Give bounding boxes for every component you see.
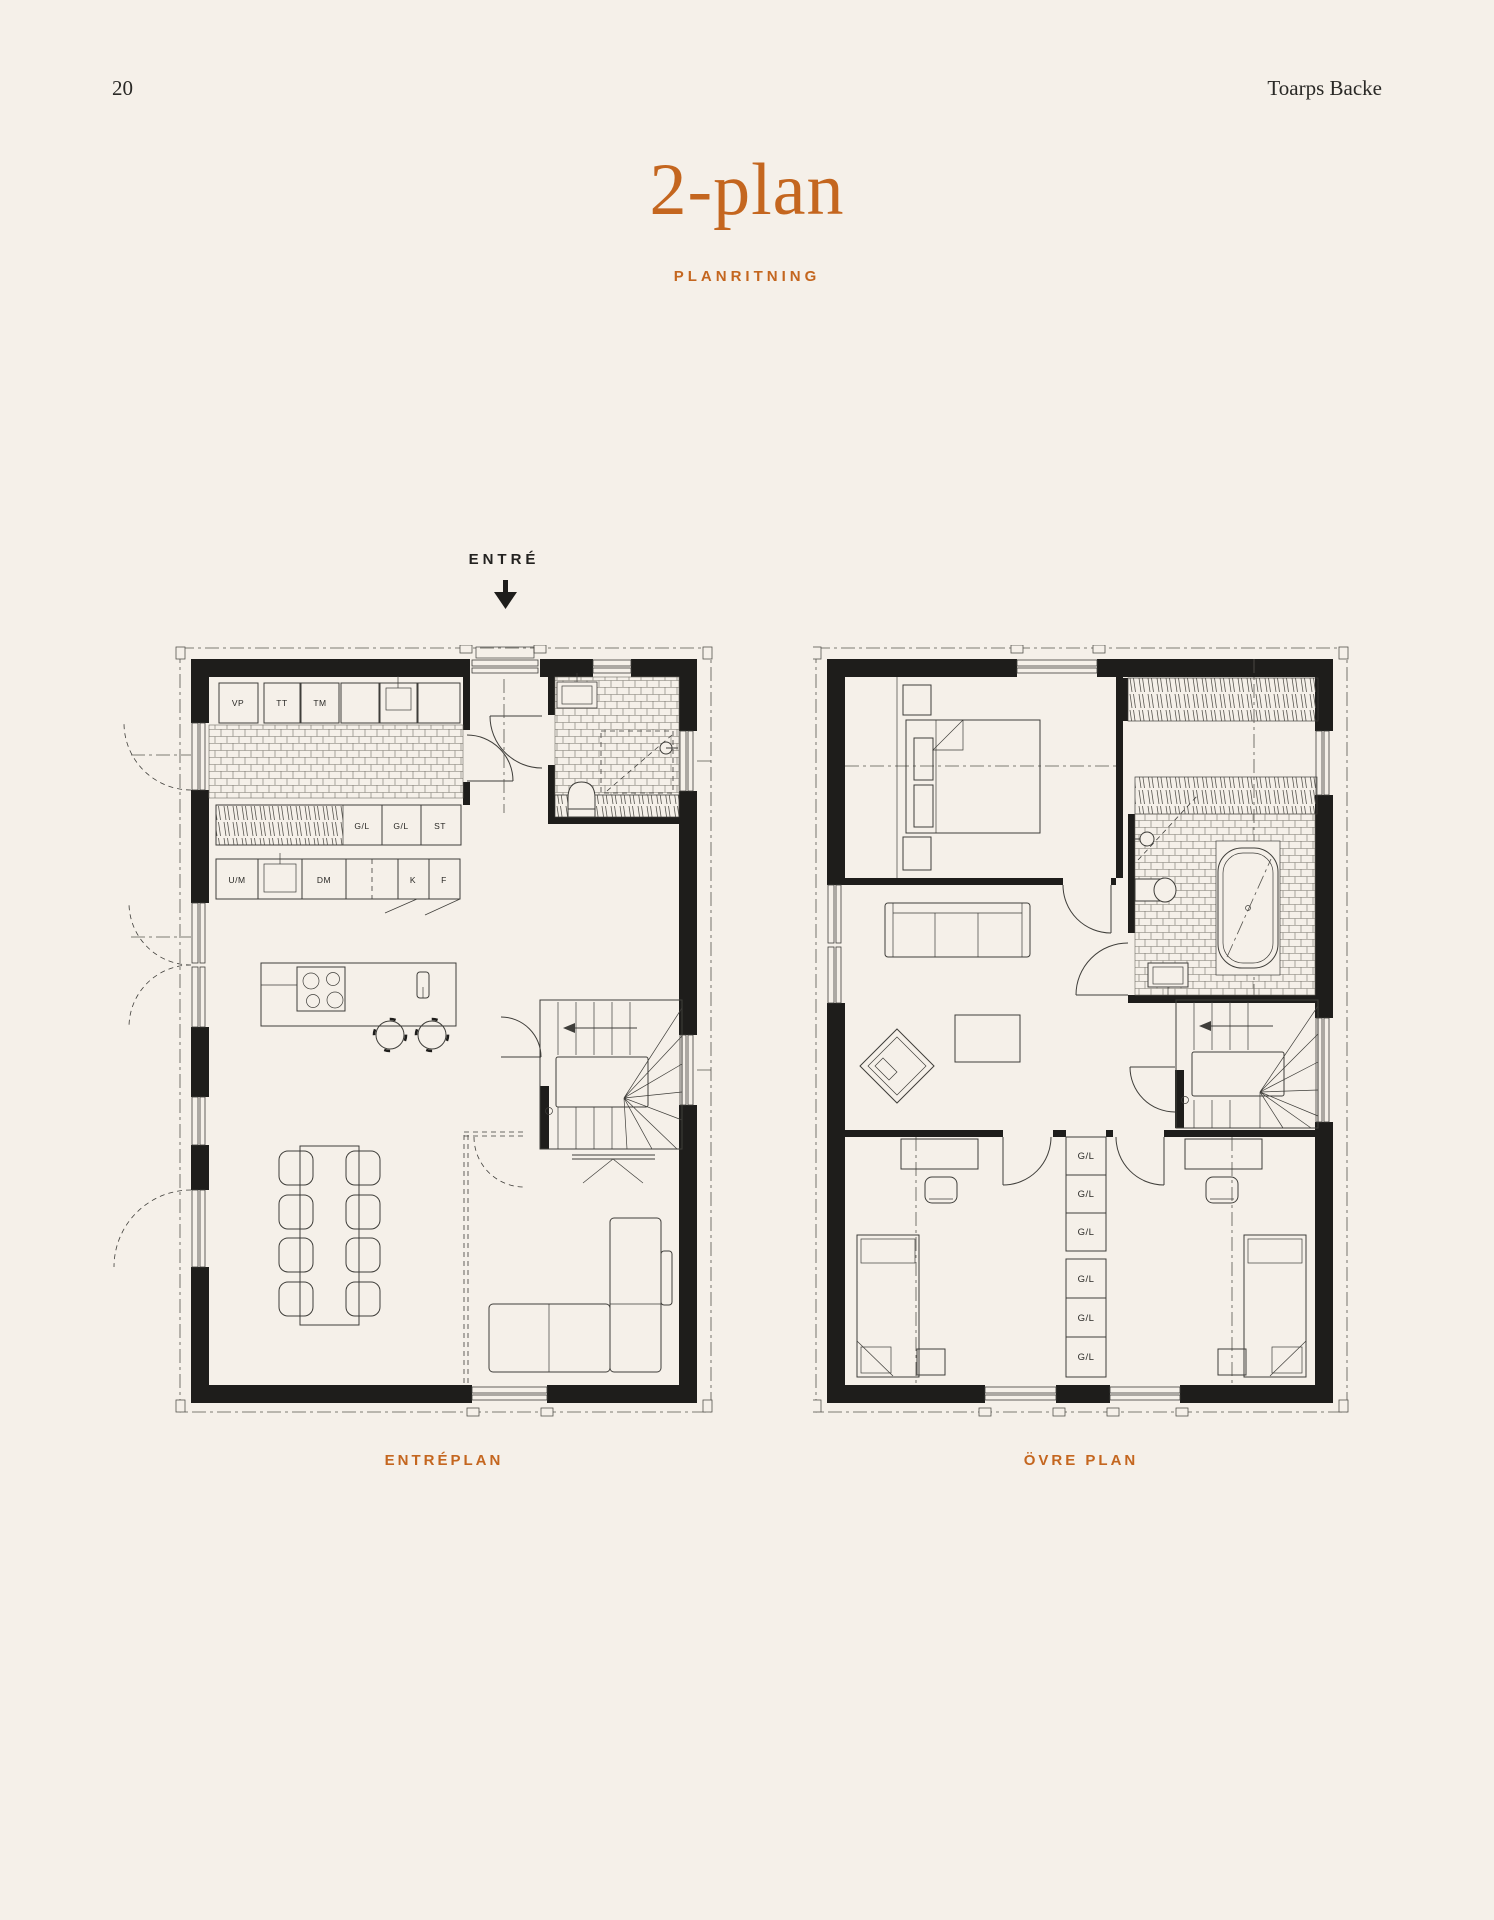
closet-label: G/L: [1078, 1227, 1095, 1238]
cabinet-label-gl-a: G/L: [354, 821, 369, 831]
caption-entreplan: ENTRÉPLAN: [244, 1452, 644, 1469]
exterior-walls: [827, 659, 1333, 1403]
dining-set: [279, 1146, 380, 1325]
closet-label: G/L: [1078, 1274, 1095, 1285]
cabinet-label-k: K: [410, 875, 416, 885]
closet-label: G/L: [1078, 1151, 1095, 1162]
cabinet-label-f: F: [441, 875, 447, 885]
cabinet-label-gl-b: G/L: [393, 821, 408, 831]
entrance-doorway: [467, 647, 542, 813]
optional-room-walls: [464, 1132, 524, 1385]
closet-label: G/L: [1078, 1189, 1095, 1200]
brochure-page: 20 Toarps Backe 2-plan PLANRITNING ENTRÉ: [0, 0, 1494, 1920]
floor-plan-ovre-plan: G/L G/L G/L G/L G/L G/L: [813, 645, 1350, 1417]
closet-label: G/L: [1078, 1352, 1095, 1363]
staircase: [501, 1000, 682, 1149]
cabinet-label-um: U/M: [228, 875, 245, 885]
tv-bench: [572, 1155, 655, 1183]
bathroom: [1076, 795, 1315, 995]
master-bedroom: [897, 677, 1111, 933]
bedroom-left: [857, 1139, 978, 1377]
closet-label: G/L: [1078, 1313, 1095, 1324]
brand-name: Toarps Backe: [1267, 76, 1382, 101]
page-title: 2-plan: [0, 150, 1494, 231]
floor-plan-entreplan: VP TT TM G/L G/L ST U/M DM K F: [97, 645, 714, 1417]
plot-boundary: [813, 645, 1348, 1416]
entrance-arrow-icon: [491, 580, 519, 612]
closet-column: G/L G/L G/L G/L G/L G/L: [1066, 1137, 1106, 1377]
bathroom: [555, 673, 679, 817]
staircase: [1130, 1000, 1318, 1128]
cabinet-label-dm: DM: [317, 875, 331, 885]
page-subtitle: PLANRITNING: [0, 268, 1494, 285]
kitchen-island: [261, 963, 456, 1051]
walk-in-closet: [1128, 678, 1318, 814]
cabinet-label-vp: VP: [232, 698, 244, 708]
page-number: 20: [112, 76, 133, 101]
cabinet-label-tt: TT: [276, 698, 287, 708]
kitchen-cabinets: VP TT TM G/L G/L ST U/M DM K F: [209, 676, 463, 915]
bedroom-right: [1185, 1139, 1306, 1377]
entrance-label: ENTRÉ: [404, 551, 604, 568]
cabinet-label-st: ST: [434, 821, 446, 831]
sofa: [489, 1218, 672, 1372]
caption-ovre-plan: ÖVRE PLAN: [881, 1452, 1281, 1469]
living-room: [860, 903, 1030, 1103]
cabinet-label-tm: TM: [313, 698, 326, 708]
